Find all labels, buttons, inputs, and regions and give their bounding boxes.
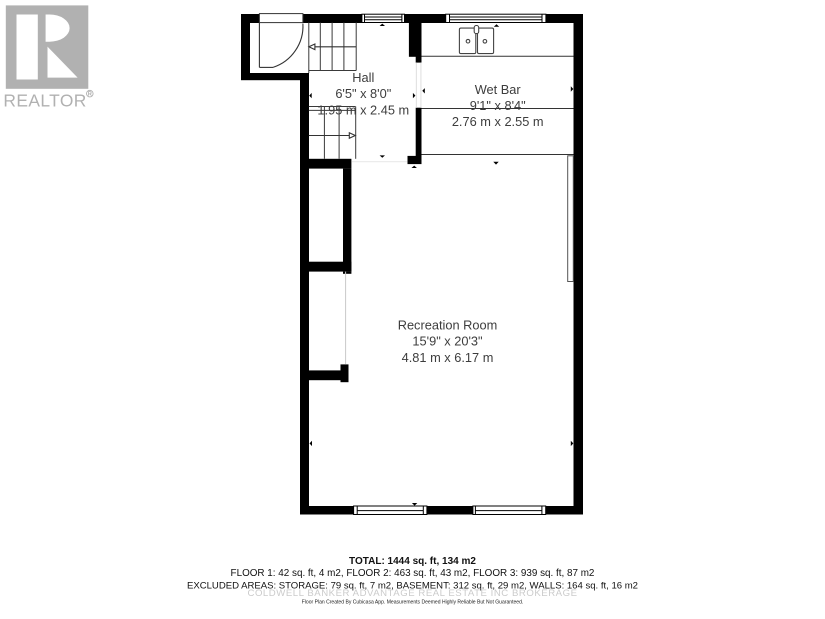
svg-text:Hall: Hall [352,70,374,85]
svg-text:REALTOR: REALTOR [3,91,86,111]
svg-text:Recreation Room: Recreation Room [398,318,498,333]
svg-text:COLDWELL BANKER ADVANTAGE REAL: COLDWELL BANKER ADVANTAGE REAL ESTATE IN… [247,588,577,599]
svg-text:15'9" x 20'3": 15'9" x 20'3" [412,334,482,349]
svg-text:Floor Plan Created By Cubicasa: Floor Plan Created By Cubicasa App. Meas… [302,599,524,605]
svg-text:6'5" x 8'0": 6'5" x 8'0" [335,86,391,101]
svg-text:4.81 m x 6.17 m: 4.81 m x 6.17 m [402,350,494,365]
svg-text:FLOOR 1: 42 sq. ft, 4 m2, FLOO: FLOOR 1: 42 sq. ft, 4 m2, FLOOR 2: 463 s… [231,568,595,579]
svg-text:2.76 m x 2.55 m: 2.76 m x 2.55 m [452,114,544,129]
svg-text:1.95 m x 2.45 m: 1.95 m x 2.45 m [317,102,409,117]
svg-text:TOTAL: 1444 sq. ft, 134 m2: TOTAL: 1444 sq. ft, 134 m2 [349,556,476,567]
svg-text:9'1" x 8'4": 9'1" x 8'4" [470,98,526,113]
svg-text:Wet Bar: Wet Bar [475,82,522,97]
